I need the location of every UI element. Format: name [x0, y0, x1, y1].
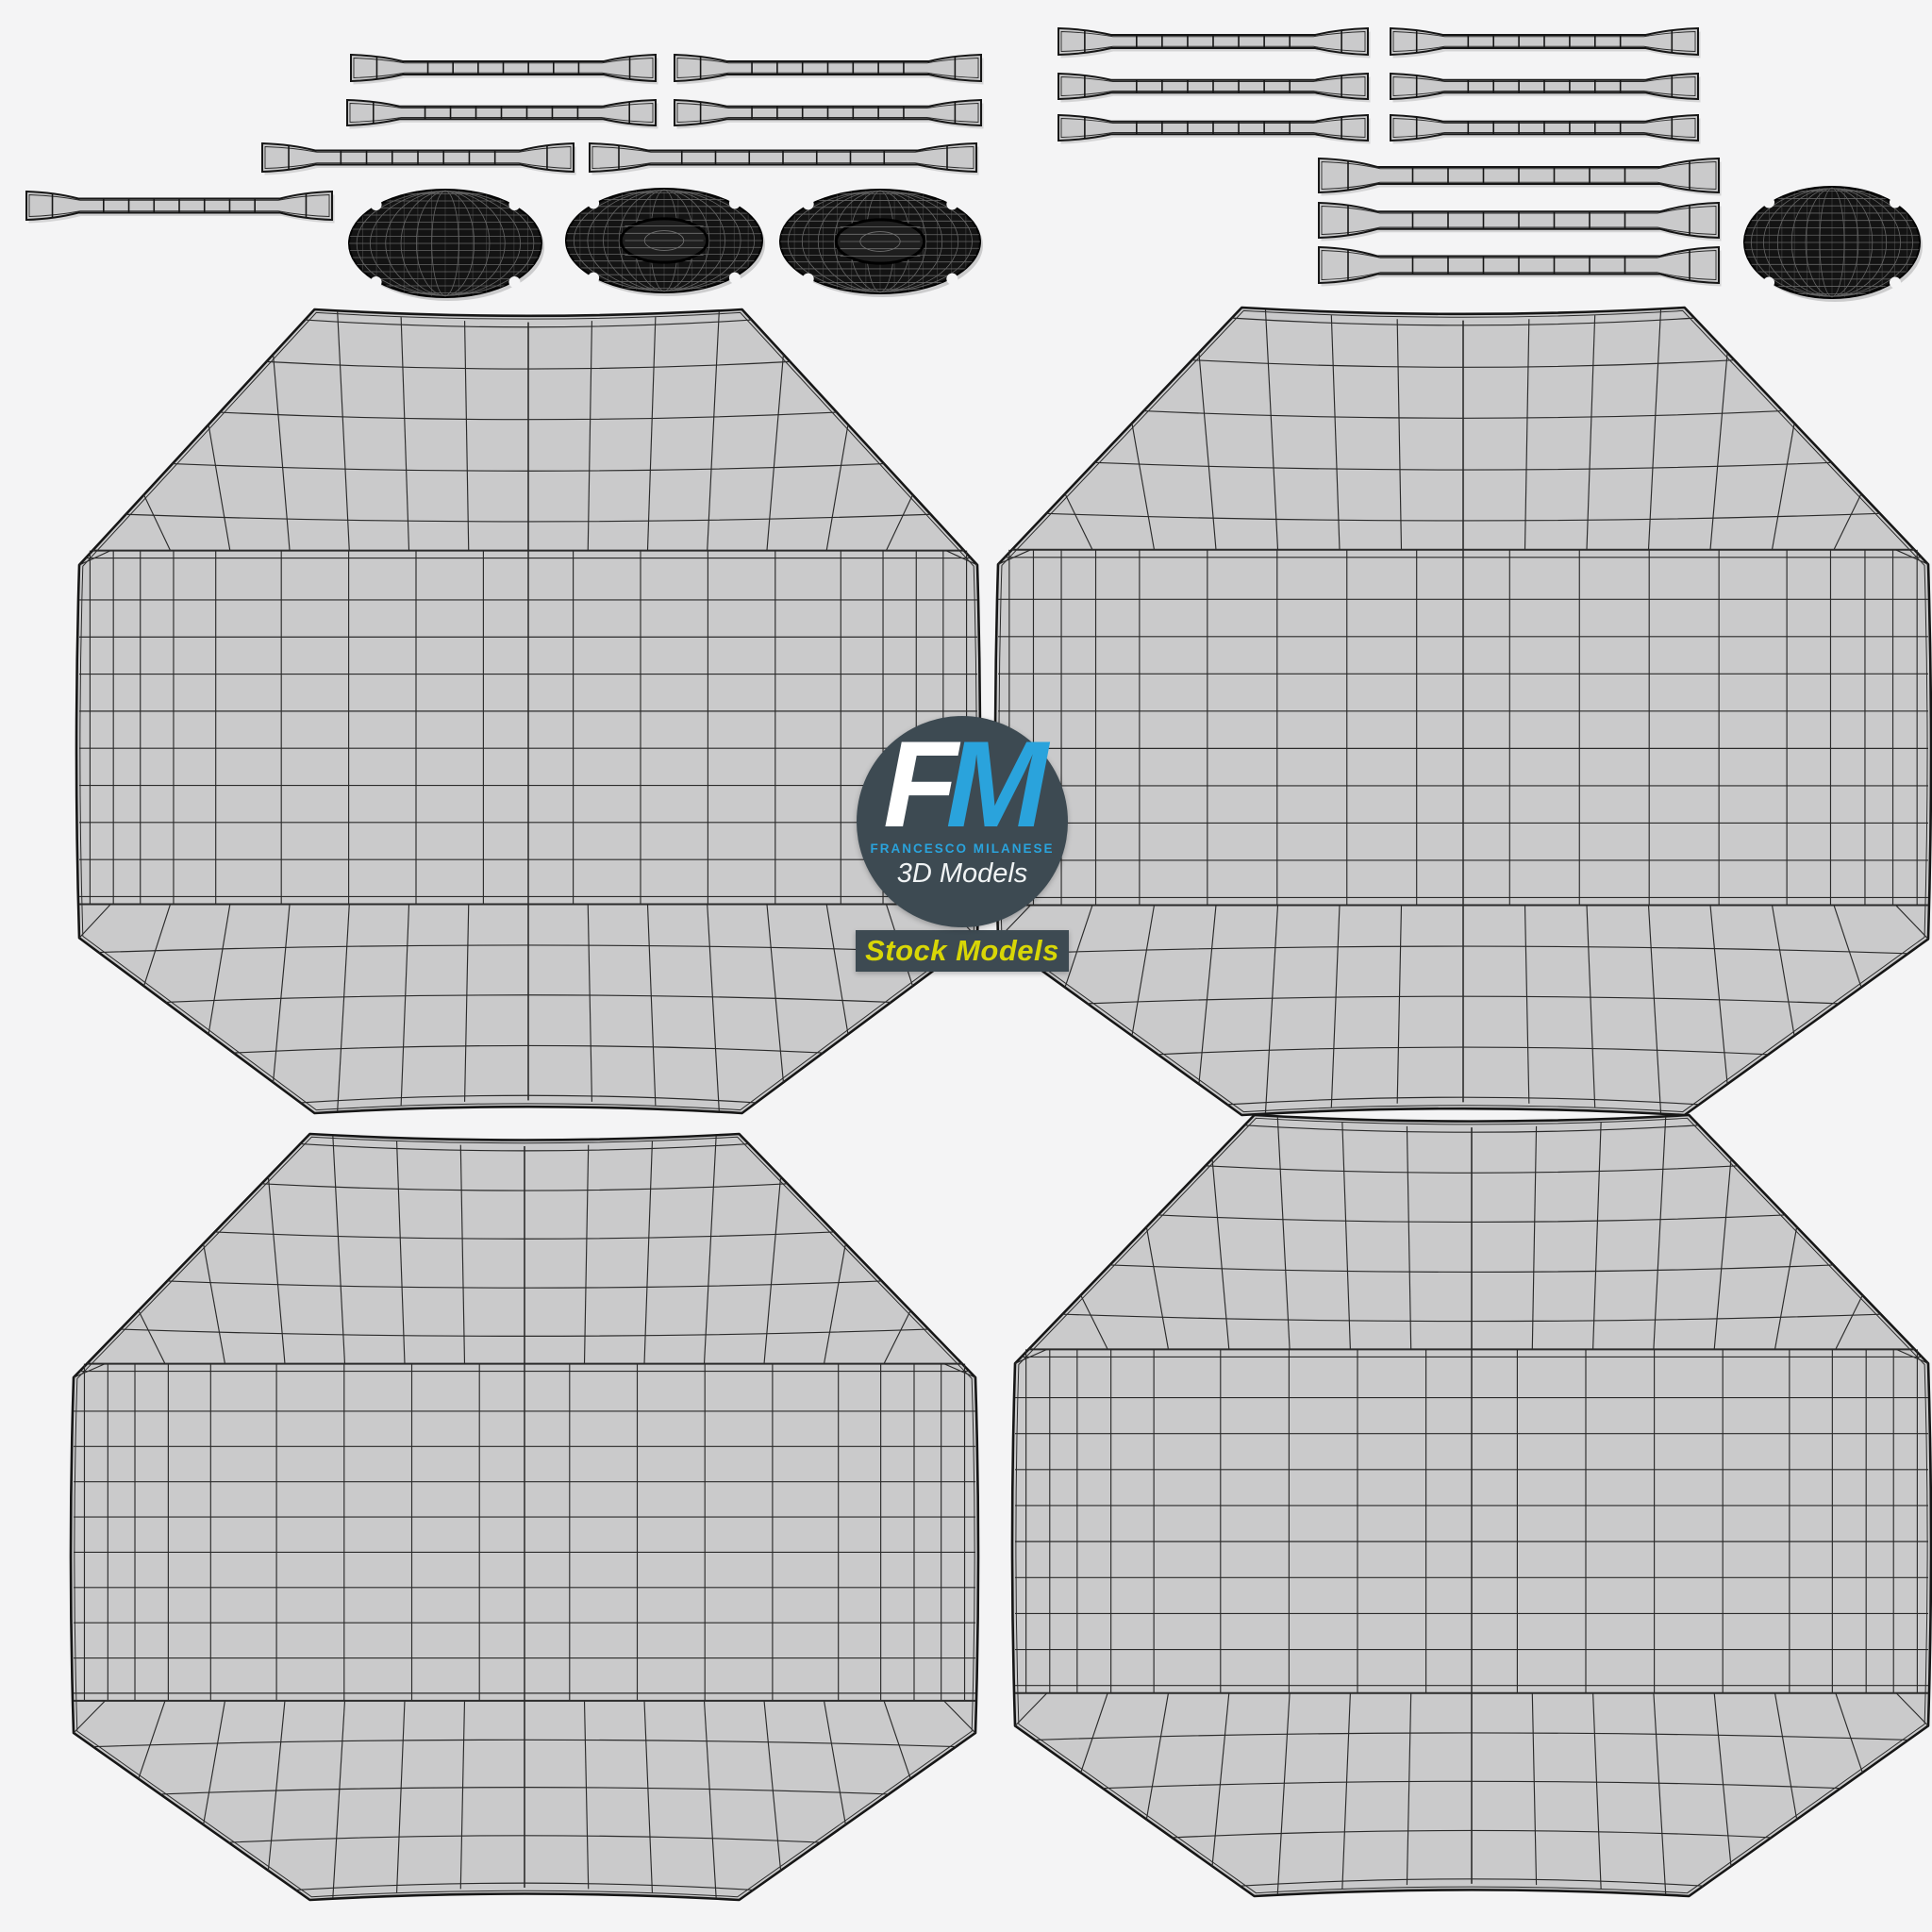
- dark-torus-mesh-2: [566, 189, 765, 296]
- fm-letter-f: F: [883, 715, 951, 853]
- fm-letter-m: M: [946, 715, 1041, 853]
- stock-models-badge: Stock Models: [856, 930, 1069, 972]
- fm-logo: FM FRANCESCO MILANESE 3D Models: [857, 716, 1068, 927]
- tube-strip-mesh-7: [26, 192, 335, 224]
- tube-strip-mesh-5: [262, 143, 576, 175]
- tube-strip-mesh-11: [1391, 74, 1701, 103]
- tube-strip-mesh-10: [1058, 74, 1371, 103]
- tube-strip-mesh-1: [351, 55, 658, 85]
- tube-strip-mesh-4: [675, 100, 984, 129]
- tube-strip-mesh-6: [590, 143, 979, 175]
- dark-torus-mesh-3: [780, 190, 983, 297]
- octagon-wireframe-3: [71, 1134, 978, 1900]
- uv-wireframe-sheet: FM FRANCESCO MILANESE 3D Models Stock Mo…: [0, 0, 1932, 1932]
- dark-ellipsoid-mesh-1: [349, 190, 544, 301]
- tube-strip-mesh-14: [1319, 158, 1722, 196]
- fm-logo-letters: FM: [883, 735, 1041, 833]
- tube-strip-mesh-13: [1391, 115, 1701, 144]
- fm-logo-tagline: 3D Models: [897, 858, 1028, 890]
- tube-strip-mesh-9: [1391, 28, 1701, 58]
- tube-strip-mesh-3: [347, 100, 658, 129]
- octagon-wireframe-1: [76, 309, 980, 1113]
- tube-strip-mesh-16: [1319, 247, 1722, 287]
- dark-ellipsoid-mesh-4: [1744, 187, 1923, 302]
- tube-strip-mesh-15: [1319, 203, 1722, 241]
- stock-models-label: Stock Models: [865, 934, 1059, 968]
- tube-strip-mesh-2: [675, 55, 984, 85]
- octagon-wireframe-4: [1012, 1115, 1931, 1896]
- fm-logo-name: FRANCESCO MILANESE: [870, 841, 1054, 856]
- tube-strip-mesh-8: [1058, 28, 1371, 58]
- tube-strip-mesh-12: [1058, 115, 1371, 144]
- octagon-wireframe-2: [995, 308, 1931, 1115]
